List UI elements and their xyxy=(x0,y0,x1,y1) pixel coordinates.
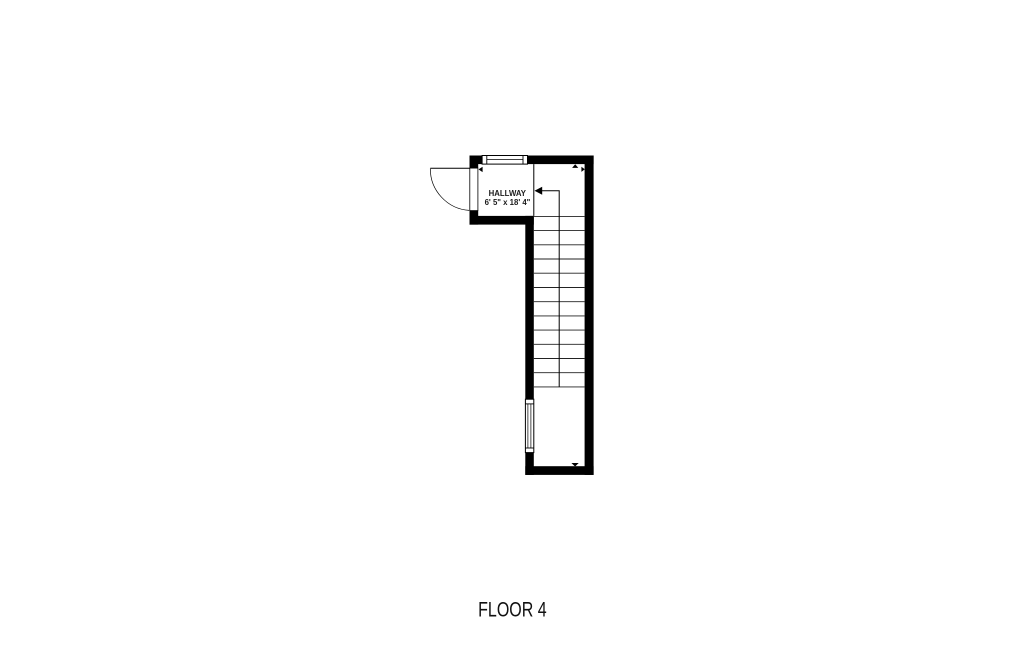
svg-text:6' 5" x 18' 4": 6' 5" x 18' 4" xyxy=(485,198,531,207)
svg-text:FLOOR 4: FLOOR 4 xyxy=(478,597,547,621)
svg-text:HALLWAY: HALLWAY xyxy=(489,189,527,198)
